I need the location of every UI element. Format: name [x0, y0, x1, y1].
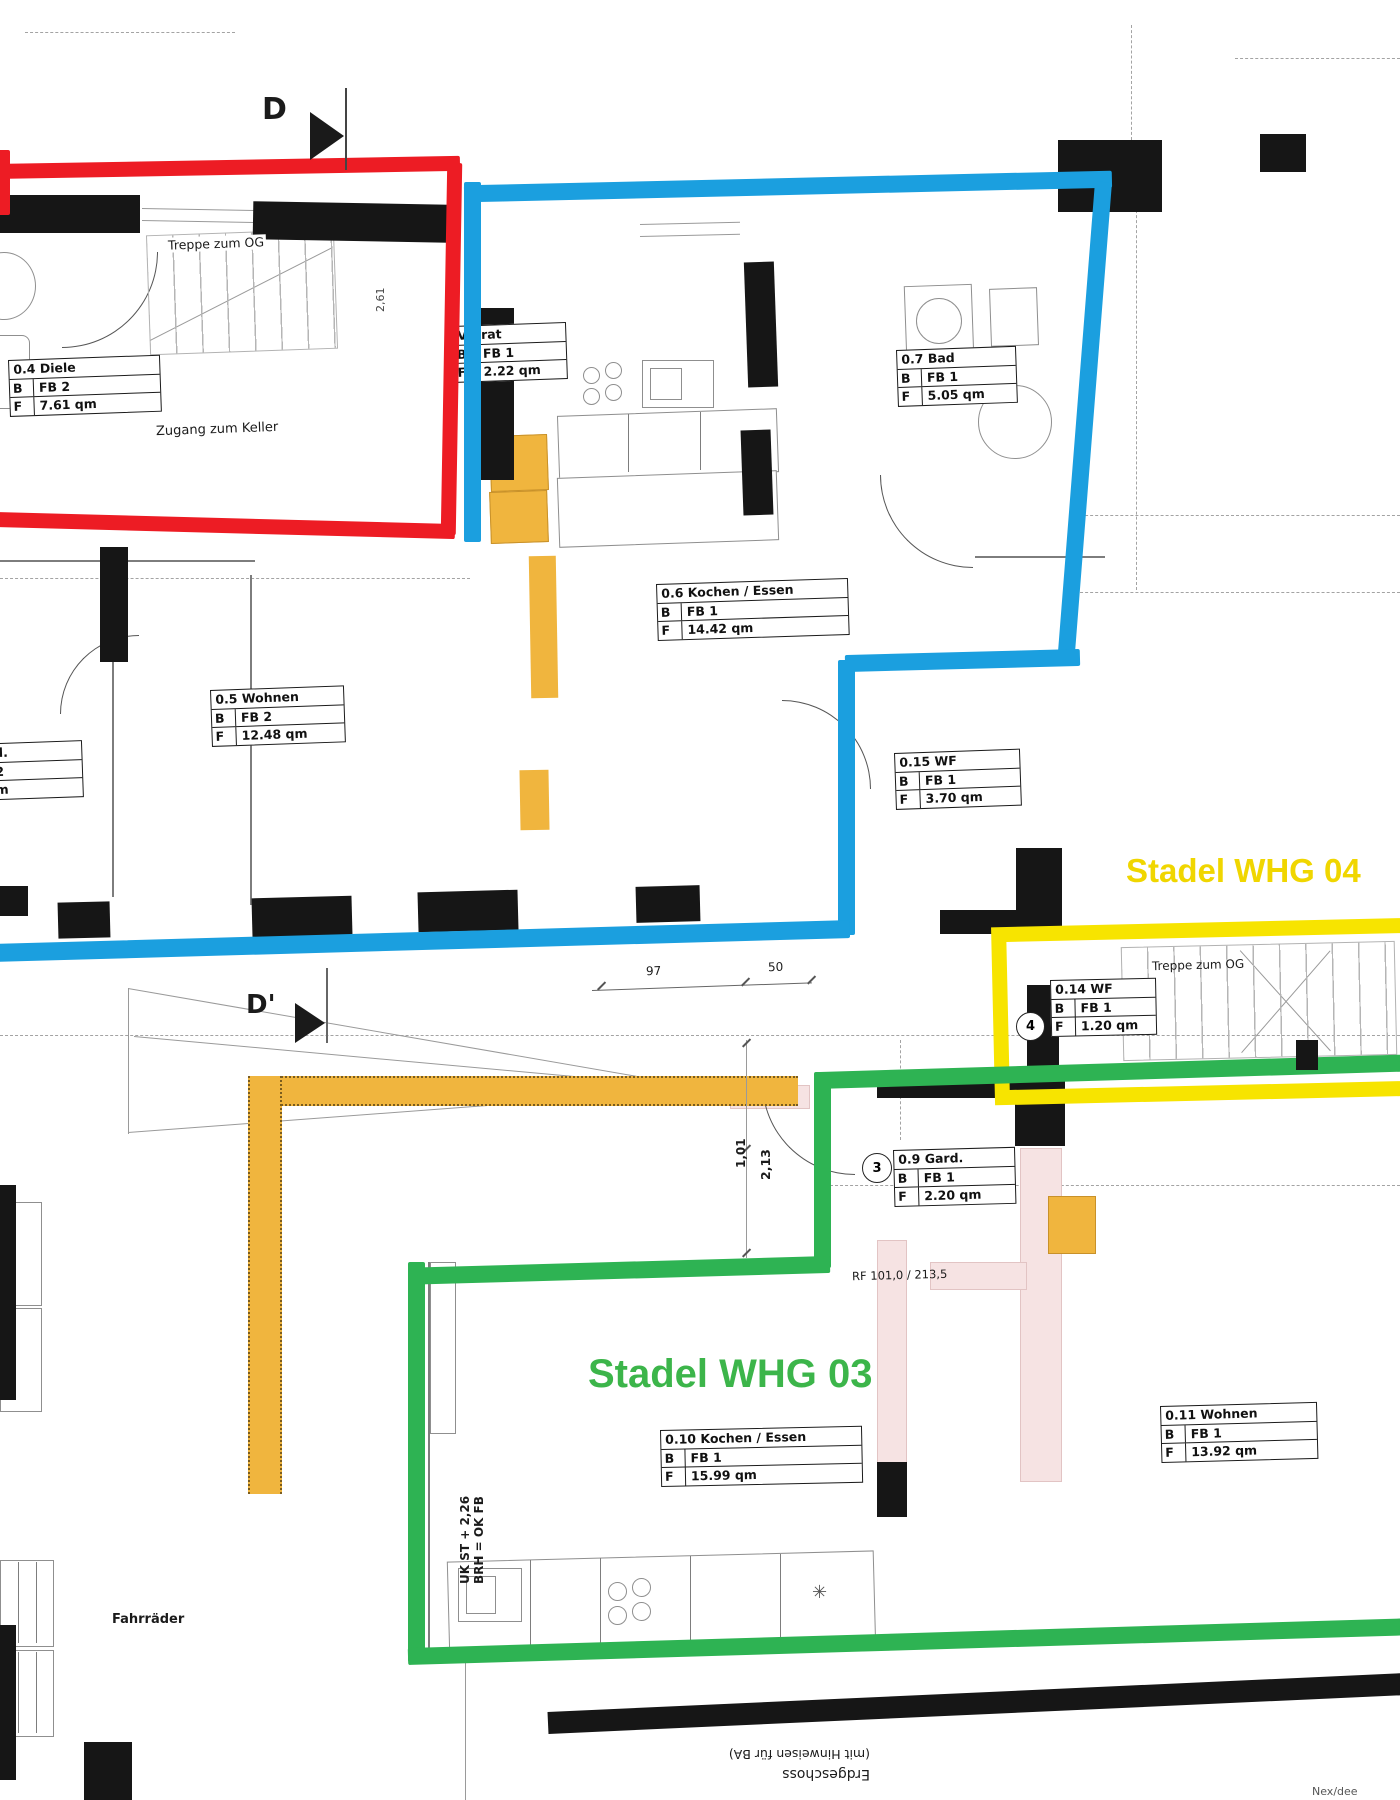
floor-line2: (mit Hinweisen für BA) [615, 1744, 870, 1763]
section-marker-d-prime: D' [246, 990, 276, 1020]
annotation-fahrraeder: Fahrräder [112, 1612, 184, 1627]
section-arrow-d [310, 112, 344, 160]
row-label-f: F [896, 790, 921, 808]
row-label-b: B [898, 369, 923, 387]
dimension-2-61: 2,61 [374, 288, 387, 313]
room-label-bad: 0.7 Bad BFB 1 F5.05 qm [896, 346, 1018, 407]
row-label-f: F [10, 397, 35, 415]
row-label-b: B [10, 379, 35, 397]
tall-cabinet [430, 1262, 456, 1434]
section-line-d-prime-tick [326, 968, 328, 1043]
uk-line2: BRH = OK FB [472, 1424, 486, 1584]
bike-rack-line [18, 1652, 19, 1733]
dimension-line [592, 982, 812, 991]
stove-burner [583, 388, 600, 405]
outline-green-left-vertical [814, 1072, 831, 1268]
row-label-b: B [895, 1169, 919, 1187]
annotation-zugang-keller: Zugang zum Keller [156, 420, 279, 439]
orange-band-vertical [248, 1076, 282, 1494]
orange-strip [529, 556, 558, 698]
window-line [640, 222, 740, 226]
room-label-wohnen-011: 0.11 Wohnen BFB 1 F13.92 qm [1160, 1402, 1318, 1463]
reference-line [1070, 515, 1400, 516]
door-arc [782, 700, 871, 789]
door-arc [62, 252, 158, 348]
dimension-2-13: 2,13 [758, 1149, 773, 1180]
dimension-1-01: 1,01 [734, 1138, 748, 1168]
dishwasher-symbol: ✳ [812, 1582, 827, 1603]
room-label-diele: 0.4 Diele BFB 2 F7.61 qm [8, 355, 162, 417]
wall-segment [100, 547, 128, 662]
wall-segment [251, 896, 352, 939]
stove-burner [608, 1606, 627, 1625]
annotation-corner-note: Nex/dee [1312, 1785, 1358, 1798]
annotation-rf: RF 101,0 / 213,5 [852, 1267, 948, 1283]
orange-band-horizontal [250, 1076, 798, 1106]
dimension-97: 97 [646, 964, 662, 979]
room-b-value: FB 1 [920, 768, 1021, 789]
row-label-b: B [896, 772, 921, 790]
reference-line [465, 1660, 466, 1800]
section-marker-d: D [262, 92, 287, 127]
room-b-value: FB 1 [1186, 1422, 1317, 1443]
counter-divider [530, 1560, 531, 1646]
room-b-value: FB 1 [685, 1445, 861, 1466]
room-label-wf-015: 0.15 WF BFB 1 F3.70 qm [894, 749, 1022, 810]
row-label-b: B [661, 1449, 685, 1467]
reference-line [1131, 25, 1132, 140]
wall-segment [1016, 848, 1062, 930]
room-b-value: FB 1 [478, 342, 567, 363]
sink-bowl [650, 368, 682, 400]
outline-green-left-vertical2 [408, 1262, 425, 1662]
stove-burner [632, 1602, 651, 1621]
washing-machine-drum [916, 298, 962, 344]
wall-segment [58, 901, 111, 938]
stove-burner [605, 384, 622, 401]
section-arrow-d-prime [295, 1003, 325, 1043]
room-f-value: 14.42 qm [682, 616, 848, 639]
window-line [142, 208, 254, 211]
dimension-50: 50 [768, 960, 784, 975]
row-label-b: B [1162, 1425, 1186, 1443]
construction-line [128, 988, 700, 1088]
room-f-value: 12.48 qm [236, 724, 345, 745]
reference-line [25, 32, 235, 33]
counter-divider [628, 414, 629, 472]
wall-segment [0, 1625, 16, 1780]
row-label-b: B [212, 709, 237, 727]
outline-blue-step [845, 649, 1080, 672]
apartment-title-whg03: Stadel WHG 03 [588, 1352, 873, 1397]
orange-strip [519, 770, 549, 830]
row-label-f: F [658, 621, 683, 639]
window-line [640, 234, 740, 238]
room-f-value: 7.61 qm [34, 393, 161, 415]
room-f-value: 3.70 qm [920, 787, 1021, 808]
wall-segment [84, 1742, 132, 1800]
reference-line [0, 578, 470, 579]
wall-segment [253, 201, 450, 242]
stove-burner [583, 367, 600, 384]
window-line [142, 220, 254, 223]
wall-segment [877, 1462, 907, 1517]
wall-segment [0, 195, 140, 233]
wall-segment [744, 262, 778, 388]
stove-burner [632, 1578, 651, 1597]
bike-rack-line [18, 1562, 19, 1643]
row-label-f: F [1162, 1444, 1186, 1462]
floor-plan-canvas: ✳ [0, 0, 1400, 1800]
wall-segment [1296, 1040, 1318, 1070]
section-line-d [345, 88, 347, 170]
reference-line [1235, 58, 1400, 59]
uk-line1: UK ST + 2,26 [458, 1424, 472, 1584]
wall-line [975, 556, 1105, 558]
room-f-value: 3 qm [0, 778, 83, 800]
outline-red-top [0, 156, 460, 179]
counter-divider [700, 412, 701, 470]
wall-segment [1260, 134, 1306, 172]
room-label-kochen-essen-010: 0.10 Kochen / Essen BFB 1 F15.99 qm [660, 1426, 863, 1487]
bath-cabinet [989, 287, 1039, 347]
outline-blue-top [464, 171, 1112, 203]
room-label-wohnen-05: 0.5 Wohnen BFB 2 F12.48 qm [210, 685, 346, 747]
annotation-erdgeschoss: Erdgeschoss (mit Hinweisen für BA) [615, 1744, 870, 1784]
stove-burner [605, 362, 622, 379]
room-f-value: 5.05 qm [922, 384, 1017, 405]
circle-number-3: 3 [862, 1153, 892, 1183]
wall-segment [548, 1673, 1400, 1734]
room-label-kochen-essen-06: 0.6 Kochen / Essen BFB 1 F14.42 qm [656, 578, 850, 641]
row-label-f: F [898, 387, 923, 405]
stove-burner [608, 1582, 627, 1601]
room-f-value: 15.99 qm [686, 1464, 862, 1485]
outline-blue-mid-vertical [838, 660, 855, 935]
outline-blue-left [464, 182, 481, 542]
row-label-f: F [662, 1468, 686, 1486]
outline-red-left-stub [0, 150, 10, 215]
outline-green-mid-horizontal [410, 1256, 830, 1285]
counter-divider [690, 1556, 691, 1642]
wall-segment [741, 430, 774, 516]
room-f-value: 13.92 qm [1186, 1440, 1317, 1461]
door-arc [880, 475, 973, 568]
annotation-uk-st: UK ST + 2,26 BRH = OK FB [458, 1424, 486, 1584]
reference-line [1070, 592, 1400, 593]
counter-divider [600, 1558, 601, 1644]
toilet [0, 252, 36, 320]
room-b-value: FB 1 [919, 1166, 1015, 1186]
outline-blue-right [1058, 181, 1112, 656]
wall-segment [0, 886, 28, 916]
apartment-title-whg04: Stadel WHG 04 [1126, 852, 1361, 890]
row-label-b: B [658, 603, 683, 621]
wall-segment [0, 1185, 16, 1400]
orange-block [1048, 1196, 1096, 1254]
bike-rack-line [36, 1652, 37, 1733]
reference-line [1136, 195, 1137, 590]
room-f-value: 2.22 qm [478, 360, 567, 381]
outline-red-bottom [0, 512, 455, 539]
room-f-value: 2.20 qm [919, 1185, 1015, 1205]
floor-line1: Erdgeschoss [615, 1763, 870, 1784]
bike-rack-line [36, 1562, 37, 1643]
room-label-gard-clipped: 7 / Gard. BFB 2 F3 qm [0, 740, 84, 802]
construction-line [128, 988, 129, 1134]
wall-segment [636, 885, 701, 923]
counter-divider [780, 1554, 781, 1640]
wall-segment [417, 890, 518, 933]
row-label-f: F [212, 727, 237, 745]
room-label-gard-09: 0.9 Gard. BFB 1 F2.20 qm [893, 1147, 1016, 1207]
room-b-value: FB 1 [922, 365, 1017, 386]
orange-block [489, 490, 549, 544]
row-label-f: F [895, 1188, 919, 1206]
